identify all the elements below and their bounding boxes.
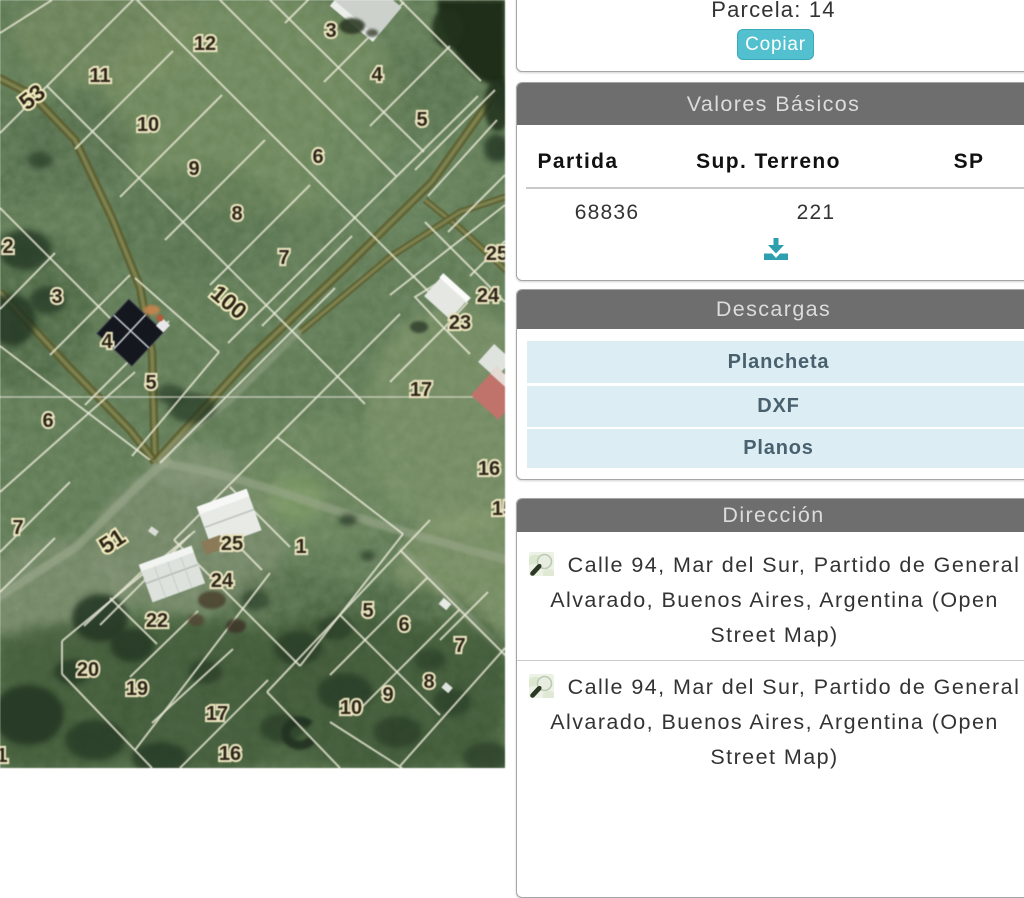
svg-text:17: 17 [206, 703, 228, 725]
svg-text:5: 5 [145, 372, 156, 394]
svg-text:3: 3 [325, 20, 336, 42]
svg-text:11: 11 [89, 65, 110, 87]
svg-text:5: 5 [416, 109, 427, 131]
svg-text:20: 20 [77, 659, 99, 681]
svg-text:25: 25 [486, 243, 505, 265]
svg-text:3: 3 [51, 286, 62, 308]
svg-text:8: 8 [423, 671, 434, 693]
svg-text:5: 5 [362, 600, 373, 622]
svg-text:12: 12 [194, 33, 216, 55]
svg-text:24: 24 [211, 570, 234, 592]
svg-text:9: 9 [382, 684, 393, 706]
svg-text:6: 6 [42, 410, 53, 432]
svg-text:4: 4 [101, 331, 113, 353]
svg-text:23: 23 [449, 312, 471, 334]
svg-text:7: 7 [278, 247, 289, 269]
svg-text:8: 8 [231, 203, 242, 225]
svg-text:1: 1 [295, 536, 306, 558]
svg-text:10: 10 [340, 697, 362, 719]
svg-text:16: 16 [219, 743, 241, 765]
svg-text:19: 19 [126, 678, 148, 700]
svg-text:25: 25 [221, 533, 243, 555]
svg-text:2: 2 [2, 236, 13, 258]
svg-text:6: 6 [398, 614, 409, 636]
svg-text:15: 15 [492, 498, 505, 520]
svg-text:24: 24 [477, 285, 500, 307]
svg-text:4: 4 [371, 64, 383, 86]
svg-text:22: 22 [146, 610, 168, 632]
svg-text:1: 1 [0, 745, 8, 767]
svg-text:16: 16 [478, 458, 500, 480]
svg-text:7: 7 [12, 517, 23, 539]
svg-text:6: 6 [312, 146, 323, 168]
svg-text:7: 7 [454, 635, 465, 657]
svg-text:10: 10 [137, 114, 159, 136]
svg-text:9: 9 [188, 158, 199, 180]
svg-text:17: 17 [410, 379, 432, 401]
